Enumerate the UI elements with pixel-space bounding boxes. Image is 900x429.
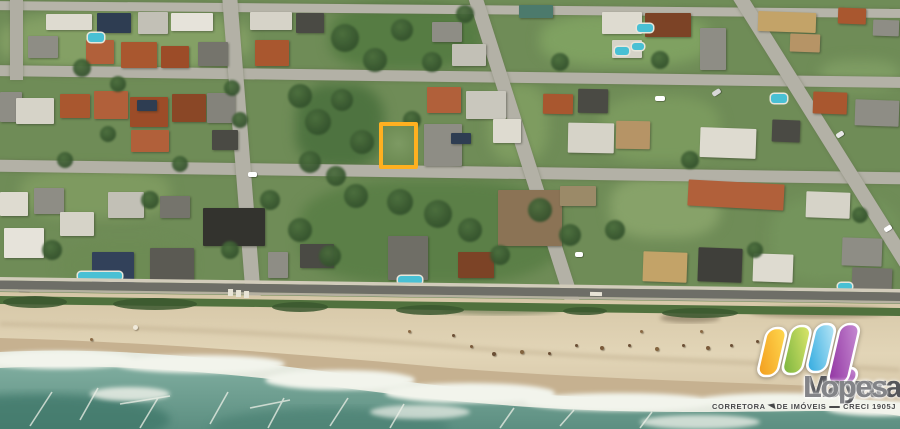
beach-dot: [640, 330, 643, 333]
beach-dot: [408, 330, 411, 333]
beach-dot: [655, 347, 659, 351]
logo-tagline: CORRETORA DE IMÓVEIS CRECI 1905J: [712, 402, 896, 411]
beach-dot: [575, 344, 578, 347]
aerial-photo: MayaraLopes CORRETORA DE IMÓVEIS CRECI 1…: [0, 0, 900, 429]
logo-name-secondary: Lopes: [803, 370, 887, 404]
beach-dot: [133, 325, 138, 330]
beach-dot: [520, 350, 524, 354]
beach-dot: [628, 344, 631, 347]
beach-dot: [452, 334, 455, 337]
beach-dot: [600, 346, 604, 350]
tagline-creci: CRECI 1905J: [843, 402, 896, 411]
tagline-corretora: CORRETORA: [712, 402, 766, 411]
road-marking: [236, 290, 241, 297]
tagline-swoosh-icon: [767, 403, 775, 410]
road-marking: [244, 291, 249, 298]
beach-dot: [90, 338, 93, 341]
beach-dot: [682, 344, 685, 347]
beach-dot: [470, 345, 473, 348]
tagline-imoveis: DE IMÓVEIS: [777, 402, 827, 411]
road-marking: [228, 289, 233, 296]
road-marking: [590, 292, 602, 296]
beach-dot: [548, 352, 551, 355]
beach-dot: [700, 330, 703, 333]
realtor-logo: MayaraLopes CORRETORA DE IMÓVEIS CRECI 1…: [706, 314, 900, 418]
highlighted-lot-outline: [379, 122, 418, 169]
beach-dot: [492, 352, 496, 356]
tagline-rule: [829, 406, 840, 408]
